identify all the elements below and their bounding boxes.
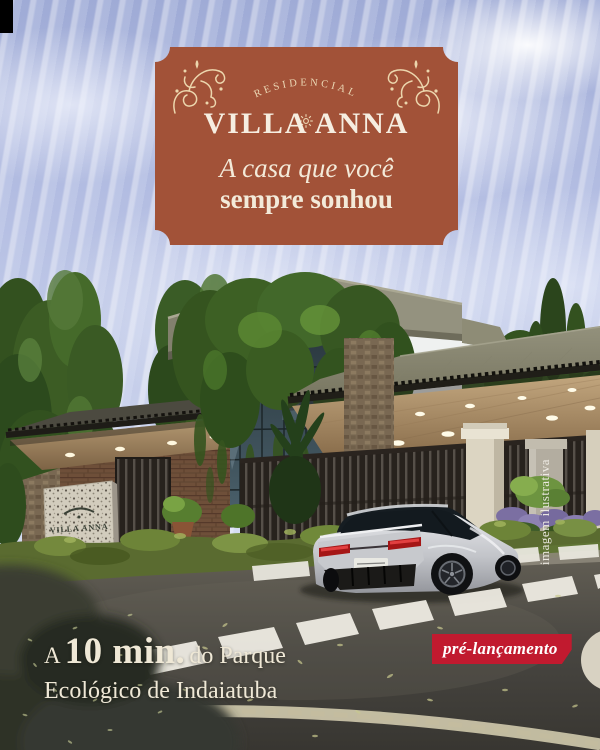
illustrative-image-watermark: imagem ilustrativa — [537, 437, 555, 587]
pre-launch-ribbon: pré-lançamento — [432, 634, 572, 664]
plaque-shape: RESIDENCIAL — [155, 47, 458, 245]
distance-prefix: A — [44, 643, 61, 668]
distance-claim: A 10 min. do Parque Ecológico de Indaiat… — [44, 634, 286, 705]
tagline-line1: A casa que você — [219, 153, 393, 183]
title-plaque: RESIDENCIAL VILLA ANNA A casa que você s… — [155, 47, 458, 245]
distance-line1: A 10 min. do Parque — [44, 634, 286, 677]
distance-value: 10 min. — [65, 631, 186, 672]
distance-suffix: do Parque — [189, 643, 286, 669]
villa-anna-ad-poster: VILLA ANNA — [0, 0, 600, 750]
plaque-tagline: A casa que você sempre sonhou — [155, 153, 458, 215]
plaque-title: VILLA ANNA — [155, 107, 458, 141]
distance-line2: Ecológico de Indaiatuba — [44, 678, 286, 705]
tagline-line2: sempre sonhou — [220, 184, 393, 214]
top-left-notch — [0, 0, 13, 33]
